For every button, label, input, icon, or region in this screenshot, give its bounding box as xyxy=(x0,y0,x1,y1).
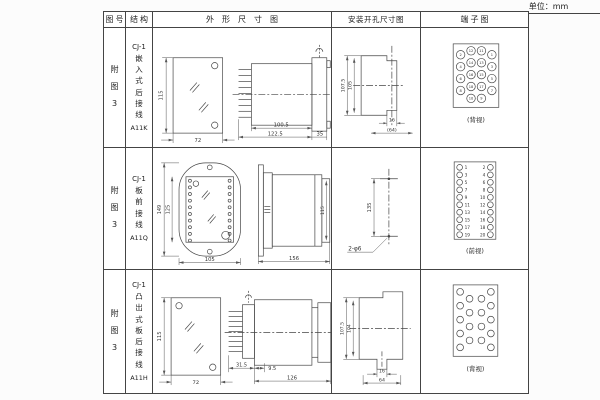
hole-callout: 2-φ6 xyxy=(348,246,362,252)
structure-code-label: A11K xyxy=(131,124,148,132)
terminal-number: 8 xyxy=(482,187,485,193)
terminal-number: 14 xyxy=(479,210,485,216)
terminal-number: 5 xyxy=(464,180,467,186)
model-label: CJ-1 xyxy=(132,43,146,51)
terminal-number: 14 xyxy=(468,61,473,65)
mounting-dims: 107.5 105 16 (64) xyxy=(340,56,412,135)
dim-opening-width: 64 xyxy=(379,377,385,383)
mounting-dims: 135 2-φ6 xyxy=(347,179,387,253)
terminal-number: 8 xyxy=(459,89,462,93)
header-outline: 外形尺寸图 xyxy=(153,12,332,28)
dim-body-depth: 100.5 xyxy=(274,123,289,129)
dim-slot-width: 16 xyxy=(389,117,395,123)
outline-cell: 115 72 31.5 xyxy=(153,270,332,393)
mount-type-label: 嵌入式后接线 xyxy=(134,53,144,121)
dim-inner-height: 104 xyxy=(347,324,353,333)
terminal-number: 3 xyxy=(490,65,492,69)
terminal-number: 16 xyxy=(468,73,473,77)
front-view xyxy=(179,163,240,256)
view-caption: (背视) xyxy=(467,115,485,124)
terminal-number: 5 xyxy=(490,77,492,81)
terminal-number: 19 xyxy=(464,232,470,238)
terminal-number: 1 xyxy=(464,165,467,171)
terminal-number: 6 xyxy=(459,77,462,81)
terminal-number: 6 xyxy=(482,180,485,186)
view-caption: (背视) xyxy=(466,364,484,373)
spec-table: 图号 结构 外形尺寸图 安装开孔尺寸图 端子图 附图3 CJ-1 嵌入式后接线 … xyxy=(103,11,529,394)
mounting-dims: 107.5 104 16 64 xyxy=(339,298,401,385)
dim-inner-height: 105 xyxy=(347,81,353,90)
terminal-number: 11 xyxy=(479,49,484,53)
figure-cell: 附图3 xyxy=(104,148,126,270)
side-dims: 100.5 122.5 35 xyxy=(239,119,327,140)
terminal-cell: 2 12 11 1 4 14 13 3 6 16 15 5 8 18 17 7 … xyxy=(421,28,528,148)
header-mounting: 安装开孔尺寸图 xyxy=(332,12,421,28)
side-view xyxy=(225,291,331,365)
mounting-diagram-a11q: 135 2-φ6 xyxy=(333,149,419,268)
structure-cell: CJ-1 凸出式板后接线 A11H xyxy=(126,270,153,393)
view-caption: (前视) xyxy=(466,246,484,255)
dim-window-height: 125 xyxy=(165,205,171,214)
dim-outer-height: 107.5 xyxy=(340,79,346,93)
mounting-cell: 107.5 105 16 (64) xyxy=(332,28,421,148)
terminal-number: 17 xyxy=(479,85,484,89)
dim-height: 149 xyxy=(157,205,163,214)
terminal-number: 18 xyxy=(468,85,473,89)
terminal-number: 4 xyxy=(459,65,462,69)
hole-marks xyxy=(380,169,398,246)
terminal-plate xyxy=(453,285,498,356)
structure-code-label: A11H xyxy=(130,374,148,382)
terminal-number: 15 xyxy=(464,217,470,223)
structure-cell: CJ-1 板前接线 A11Q xyxy=(126,148,153,270)
dim-total-depth: 122.5 xyxy=(268,132,283,138)
side-dims: 156 115 xyxy=(258,181,329,264)
terminal-number: 10 xyxy=(468,97,473,101)
model-label: CJ-1 xyxy=(132,175,146,183)
terminal-number: 12 xyxy=(468,49,473,53)
front-view xyxy=(173,58,223,133)
header-figure: 图号 xyxy=(104,12,126,28)
terminal-circles xyxy=(456,164,492,237)
dim-height: 115 xyxy=(159,90,165,100)
outline-diagram-a11k: 115 72 100.5 xyxy=(153,28,331,147)
dim-side-height: 115 xyxy=(320,206,326,215)
mounting-diagram-a11h: 107.5 104 16 64 xyxy=(333,272,419,391)
front-dims: 115 72 xyxy=(159,58,235,144)
terminal-number: 2 xyxy=(482,165,485,171)
terminal-number: 13 xyxy=(479,61,484,65)
outline-diagram-a11h: 115 72 31.5 xyxy=(153,272,331,391)
terminal-plate xyxy=(454,162,496,239)
terminal-number: 3 xyxy=(464,172,467,178)
figure-cell: 附图3 xyxy=(104,28,126,148)
dim-offset: 9.5 xyxy=(268,366,276,372)
model-label: CJ-1 xyxy=(132,281,146,289)
terminal-diagram-a11k: 2 12 11 1 4 14 13 3 6 16 15 5 8 18 17 7 … xyxy=(423,28,527,147)
outline-cell: 149 125 105 156 xyxy=(153,148,332,270)
terminal-diagram-a11q: 1 3 5 7 9 11 13 15 17 19 2 4 6 8 10 12 1… xyxy=(423,149,527,268)
terminal-number: 4 xyxy=(482,172,485,178)
terminal-number: 16 xyxy=(479,217,485,223)
dim-depth: 126 xyxy=(287,375,298,381)
header-terminal: 端子图 xyxy=(421,12,528,28)
mount-type-label: 凸出式板后接线 xyxy=(134,291,144,370)
terminal-number: 9 xyxy=(464,195,467,201)
dim-hole-spacing: 135 xyxy=(367,202,373,212)
terminal-number: 20 xyxy=(479,232,485,238)
dim-height: 115 xyxy=(157,331,163,341)
terminal-cell: 1 3 5 7 9 11 13 15 17 19 2 4 6 8 10 12 1… xyxy=(421,148,528,270)
header-structure: 结构 xyxy=(126,12,153,28)
dim-width: 72 xyxy=(193,380,200,386)
terminal-number: 9 xyxy=(480,97,483,101)
terminal-number: 7 xyxy=(490,89,492,93)
structure-cell: CJ-1 嵌入式后接线 A11K xyxy=(126,28,153,148)
manual-page: { "page": { "unit_label": "单位：mm" }, "he… xyxy=(0,0,600,400)
outline-diagram-a11q: 149 125 105 156 xyxy=(153,149,331,268)
dim-flange-depth: 35 xyxy=(317,132,324,138)
mounting-cell: 107.5 104 16 64 xyxy=(332,270,421,393)
structure-code-label: A11Q xyxy=(130,234,148,242)
terminal-number: 2 xyxy=(459,53,461,57)
dim-outer-height: 107.5 xyxy=(339,322,345,335)
terminal-circles xyxy=(456,288,493,350)
figure-label: 附图3 xyxy=(109,62,120,112)
mounting-diagram-a11k: 107.5 105 16 (64) xyxy=(333,28,419,147)
terminal-number: 7 xyxy=(464,187,467,193)
mounting-cell: 135 2-φ6 xyxy=(332,148,421,270)
front-dims: 115 72 xyxy=(157,298,232,386)
dim-slot-width: 16 xyxy=(379,368,385,374)
terminal-number: 15 xyxy=(479,73,484,77)
dim-width: 105 xyxy=(205,257,215,263)
dim-depth: 156 xyxy=(289,256,300,262)
dim-width: 72 xyxy=(195,138,202,144)
figure-cell: 附图3 xyxy=(104,270,126,393)
front-view xyxy=(171,298,221,375)
terminal-number: 10 xyxy=(479,195,485,201)
terminal-number: 18 xyxy=(479,225,485,231)
figure-label: 附图3 xyxy=(109,183,120,233)
dim-pin-depth: 31.5 xyxy=(236,363,247,369)
terminal-cell: (背视) xyxy=(421,270,528,393)
terminal-number: 12 xyxy=(479,202,485,208)
terminal-number: 11 xyxy=(464,202,470,208)
terminal-diagram-a11h: (背视) xyxy=(423,272,527,391)
terminal-number: 1 xyxy=(490,53,492,57)
dim-opening-width: (64) xyxy=(387,127,397,133)
side-dims: 31.5 9.5 126 xyxy=(229,355,331,384)
terminal-numbers: 1 3 5 7 9 11 13 15 17 19 2 4 6 8 10 12 1… xyxy=(464,165,485,238)
mount-type-label: 板前接线 xyxy=(134,185,144,230)
terminal-number: 17 xyxy=(464,225,470,231)
terminal-number: 13 xyxy=(464,210,470,216)
side-view xyxy=(258,165,329,256)
cutout-shape xyxy=(349,292,410,369)
figure-label: 附图3 xyxy=(109,306,120,356)
outline-cell: 115 72 100.5 xyxy=(153,28,332,148)
side-view xyxy=(233,45,331,131)
